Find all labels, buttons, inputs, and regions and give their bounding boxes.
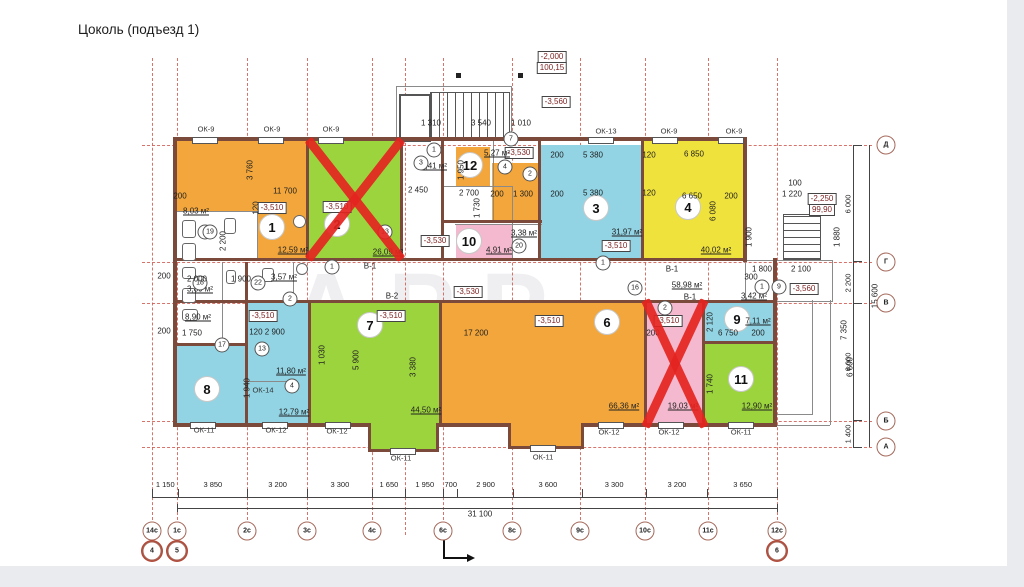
axis-bubble-secondary: 5 <box>168 542 187 561</box>
dim-label: 3 850 <box>203 480 222 489</box>
window-tag: ОК-14 <box>252 386 273 395</box>
axis-bubble: 6с <box>434 522 453 541</box>
entry-path <box>830 300 831 425</box>
dim-label: 6 650 <box>682 192 702 201</box>
room-area: 4,91 м² <box>486 246 512 255</box>
door-marker: 22 <box>251 276 266 291</box>
room-6-bay <box>511 423 581 447</box>
axis-bubble: 1с <box>168 522 187 541</box>
room-area: 12,79 м² <box>279 408 309 417</box>
door-marker: 17 <box>215 338 230 353</box>
dim-label: 6 850 <box>684 150 704 159</box>
grid-line <box>645 58 646 535</box>
wall <box>308 300 311 425</box>
dim-label: 6 000 <box>844 194 853 213</box>
room-number: 3 <box>583 195 609 221</box>
grid-line <box>152 58 153 535</box>
window-tag: ОК-11 <box>533 453 554 462</box>
dim-label: 1 900 <box>231 275 251 284</box>
dim-label: 2 200 <box>844 273 853 292</box>
dim-label: 1 950 <box>457 160 466 180</box>
stair-flight-top <box>430 92 510 140</box>
room-number: 10 <box>456 228 482 254</box>
room-area: 8,03 м² <box>183 207 209 216</box>
vent-label: В-1 <box>666 265 678 274</box>
dim-label: 5 380 <box>583 151 603 160</box>
dim-label: 1 650 <box>380 480 399 489</box>
window-opening <box>588 137 614 144</box>
door-marker: 3 <box>414 156 429 171</box>
window-opening <box>652 137 678 144</box>
dim-label: 3 380 <box>409 357 418 377</box>
elevation-box: -3,560 <box>542 96 571 108</box>
axis-bubble: 11с <box>699 522 718 541</box>
point-marker <box>518 73 523 78</box>
door-marker: 20 <box>512 239 527 254</box>
room-area: 7,11 м² <box>745 317 770 326</box>
stair-enclosure <box>396 86 397 139</box>
elevation-box: 100,15 <box>537 62 567 74</box>
vent-label: В-2 <box>386 292 398 301</box>
door-marker: 1 <box>427 143 442 158</box>
dim-label: 11 700 <box>273 187 297 196</box>
dim-total-label: 31 100 <box>468 510 492 519</box>
room-number: 11 <box>728 366 754 392</box>
door-marker: 4 <box>498 160 513 175</box>
door-marker: 7 <box>504 132 519 147</box>
door-marker: 1 <box>325 260 340 275</box>
dim-label: 3 200 <box>668 480 687 489</box>
room-number: 6 <box>594 309 620 335</box>
axis-bubble: 9с <box>571 522 590 541</box>
dim-label: 7 350 <box>840 320 849 340</box>
room-area: 66,36 м² <box>609 402 639 411</box>
wall <box>306 139 309 260</box>
room-area: 31,97 м² <box>612 228 642 237</box>
level-box: -3,510 <box>377 310 406 322</box>
room-area: 44,50 м² <box>411 406 441 415</box>
entry-path <box>812 300 813 415</box>
stair-enclosure <box>396 86 512 87</box>
room-area: 40,02 м² <box>701 246 731 255</box>
axis-bubble: Б <box>877 412 896 431</box>
dim-label: 120 <box>252 201 261 214</box>
dim-label: 1 400 <box>844 425 853 444</box>
dimension-chain-right: 6 000 2 200 6 000 1 400 <box>853 145 862 448</box>
room-area: 11,80 м² <box>276 367 306 376</box>
dim-label: 3 300 <box>605 480 624 489</box>
dim-label: 2 450 <box>408 186 428 195</box>
dim-label: 1 950 <box>415 480 434 489</box>
door-marker: 4 <box>285 379 300 394</box>
dim-label: 5 900 <box>352 350 361 370</box>
window-tag: ОК-12 <box>265 426 286 435</box>
dim-label: 200 <box>550 151 563 160</box>
dim-label: 300 <box>744 273 757 282</box>
wall <box>436 423 439 452</box>
level-box: -3,510 <box>249 310 278 322</box>
wall <box>439 423 511 427</box>
window-tag: ОК-11 <box>731 428 752 437</box>
window-tag: ОК-13 <box>595 127 616 136</box>
window-opening <box>192 137 218 144</box>
dim-label: 3 300 <box>331 480 350 489</box>
partition <box>248 381 290 382</box>
door-marker: 2 <box>283 292 298 307</box>
window-tag: ОК-11 <box>391 454 412 463</box>
door-marker: 2 <box>658 301 673 316</box>
window-opening <box>258 137 284 144</box>
dim-label: 200 <box>157 272 170 281</box>
window-opening <box>718 137 744 144</box>
room-area: 12,90 м² <box>742 402 772 411</box>
dim-label: 5 380 <box>583 189 603 198</box>
wall <box>704 341 777 344</box>
room-marker: 13 <box>255 342 270 357</box>
room-area: 8,90 м² <box>185 313 211 322</box>
window-tag: ОК-9 <box>264 125 281 134</box>
dimension-tick <box>177 504 178 512</box>
dim-label: 200 <box>724 192 737 201</box>
entry-path <box>777 425 830 426</box>
dim-label: 3 600 <box>539 480 558 489</box>
wall <box>644 300 647 425</box>
room-area: 5,27 м² <box>484 149 510 158</box>
dim-label: 6 000 <box>844 353 853 372</box>
axis-bubble: В <box>877 294 896 313</box>
door-marker: 1 <box>755 280 770 295</box>
dim-label: 2 700 <box>459 189 479 198</box>
axis-bubble-secondary: 4 <box>143 542 162 561</box>
dimension-chain-bottom: 1 150 3 850 3 200 3 300 1 650 1 950 700 … <box>152 489 778 498</box>
grid-line <box>708 58 709 535</box>
fixture <box>293 215 306 228</box>
axis-bubble: 14с <box>143 522 162 541</box>
door-marker: 9 <box>772 280 787 295</box>
wall <box>177 343 247 346</box>
dim-label: 3 650 <box>733 480 752 489</box>
axis-bubble: 12с <box>768 522 787 541</box>
entry-path <box>777 414 812 415</box>
partition <box>257 211 258 260</box>
wall <box>400 139 403 260</box>
axis-bubble: 2с <box>238 522 257 541</box>
dim-label: 3 540 <box>471 119 491 128</box>
wall <box>173 258 747 261</box>
room-area: 3,38 м² <box>511 229 537 238</box>
dim-label: 200 <box>751 329 764 338</box>
door-marker: 2 <box>523 167 538 182</box>
window-opening <box>530 445 556 452</box>
dim-label: 1 740 <box>706 374 715 394</box>
wall <box>173 137 177 427</box>
dim-label: 1 880 <box>833 227 842 247</box>
page-title: Цоколь (подъезд 1) <box>78 22 199 37</box>
dim-label: 200 <box>550 190 563 199</box>
dim-label: 1 300 <box>513 190 533 199</box>
grid-line <box>512 58 513 535</box>
dim-label: 1 730 <box>473 198 482 218</box>
dim-label: 200 <box>490 190 503 199</box>
dim-label: 2 900 <box>476 480 495 489</box>
dim-label: 1 900 <box>745 227 754 247</box>
wall <box>538 139 541 260</box>
axis-bubble: Г <box>877 253 896 272</box>
dim-label: 3 200 <box>268 480 287 489</box>
dim-label: 2 200 <box>219 231 228 251</box>
elevation-box: 99,90 <box>809 204 835 216</box>
dim-label: 17 200 <box>464 329 488 338</box>
axis-bubble: 3с <box>298 522 317 541</box>
dim-label: 1 220 <box>782 190 802 199</box>
dim-label: 120 <box>642 189 655 198</box>
level-box: -3,510 <box>535 315 564 327</box>
room-number: 8 <box>194 376 220 402</box>
elevation-box: -3,560 <box>790 283 819 295</box>
dim-label: 6 080 <box>709 201 718 221</box>
axis-bubble: Д <box>877 136 896 155</box>
dim-label: 1 310 <box>421 119 441 128</box>
door-marker: 19 <box>203 225 218 240</box>
level-box: -3,530 <box>454 286 483 298</box>
wall <box>368 423 371 452</box>
dim-label: 1 940 <box>243 378 252 398</box>
dim-label: 2 120 <box>706 312 715 332</box>
point-marker <box>456 73 461 78</box>
fixture <box>182 243 196 261</box>
grid-line <box>142 447 872 448</box>
grid-line <box>580 58 581 535</box>
grid-line <box>177 58 178 535</box>
dim-label: 200 <box>173 192 186 201</box>
window-tag: ОК-11 <box>194 426 215 435</box>
level-box: -3,510 <box>602 240 631 252</box>
dim-label: 100 <box>788 179 801 188</box>
fixture <box>296 263 308 275</box>
window-tag: ОК-9 <box>323 125 340 134</box>
dim-label: 1 010 <box>511 119 531 128</box>
room-number: 1 <box>259 214 285 240</box>
dim-label: 2 000 <box>187 275 207 284</box>
partition <box>222 262 223 303</box>
axis-bubble: 10с <box>636 522 655 541</box>
room-area: 58,98 м² <box>672 281 702 290</box>
grid-line <box>372 58 373 535</box>
door-marker: 16 <box>628 281 643 296</box>
dim-label: 1 030 <box>318 345 327 365</box>
axis-bubble-secondary: 6 <box>768 542 787 561</box>
dim-label: 6 750 <box>718 329 738 338</box>
dim-label: 200 <box>157 327 170 336</box>
dim-label: 1 750 <box>182 329 202 338</box>
window-tag: ОК-9 <box>198 125 215 134</box>
fixture <box>182 220 196 238</box>
axis-bubble: 8с <box>503 522 522 541</box>
partition <box>455 224 542 225</box>
dimension-tick <box>777 504 778 512</box>
dim-label: 120 <box>642 151 655 160</box>
level-box: -3,510 <box>258 202 287 214</box>
dim-label: 2 100 <box>791 265 811 274</box>
partition <box>443 186 513 187</box>
window-tag: ОК-9 <box>661 127 678 136</box>
window-tag: ОК-12 <box>658 428 679 437</box>
room-area: 12,59 м² <box>278 246 308 255</box>
window-opening <box>318 137 344 144</box>
grid-line <box>307 58 308 535</box>
window-tag: ОК-12 <box>326 427 347 436</box>
door-marker: 1 <box>596 256 611 271</box>
room-area: 3,57 м² <box>271 273 297 282</box>
level-box: -3,530 <box>421 235 450 247</box>
dim-label: 700 <box>445 480 458 489</box>
stair-flight-right <box>783 214 821 260</box>
dim-label: 1 150 <box>156 480 175 489</box>
window-tag: ОК-9 <box>726 127 743 136</box>
dim-label: 3 760 <box>246 160 255 180</box>
window-tag: ОК-12 <box>598 428 619 437</box>
wall <box>443 220 542 223</box>
axis-bubble: А <box>877 438 896 457</box>
room-7-bay <box>368 423 439 450</box>
vent-label: В-1 <box>684 293 696 302</box>
dim-label: 120 2 900 <box>249 328 285 337</box>
vent-label: В-1 <box>364 262 376 271</box>
axis-bubble: 4с <box>363 522 382 541</box>
